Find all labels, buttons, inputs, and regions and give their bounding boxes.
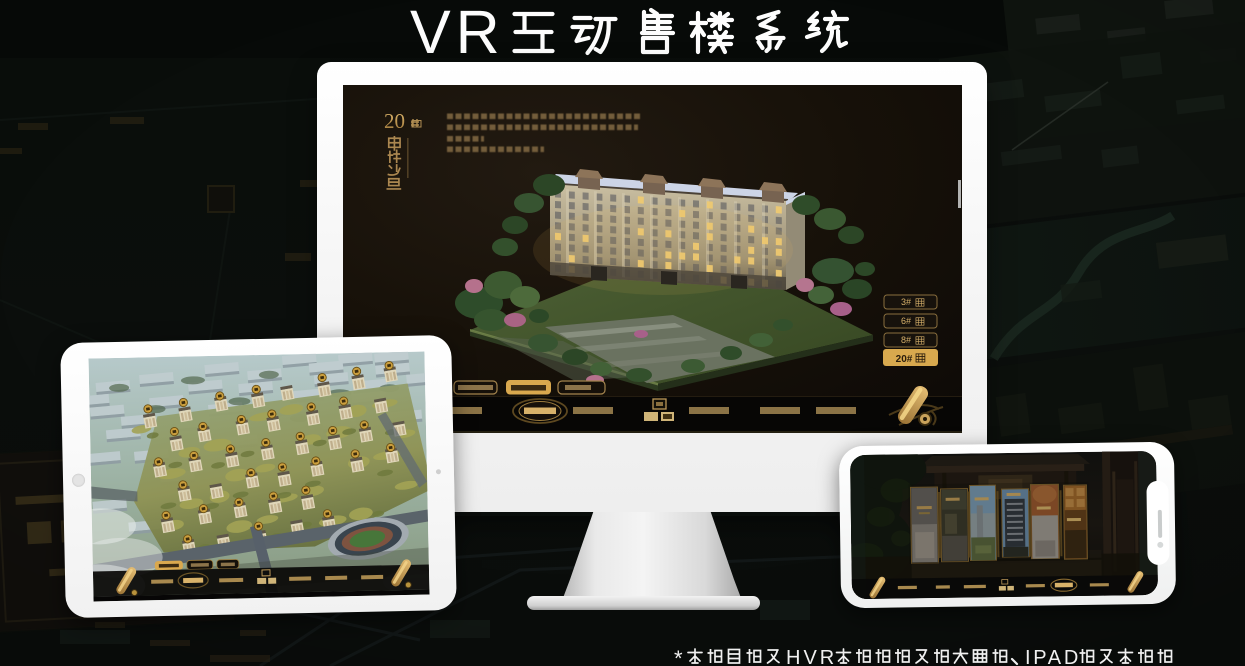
svg-text:20#: 20# — [896, 354, 913, 365]
svg-text:20: 20 — [384, 109, 405, 133]
svg-text:VR: VR — [410, 0, 505, 62]
svg-text:IPAD: IPAD — [1025, 647, 1081, 666]
svg-text:HVR: HVR — [786, 647, 837, 666]
svg-text:8#: 8# — [901, 335, 911, 345]
svg-text:*: * — [674, 646, 683, 666]
svg-text:6#: 6# — [901, 316, 911, 326]
svg-text:3#: 3# — [901, 297, 911, 307]
